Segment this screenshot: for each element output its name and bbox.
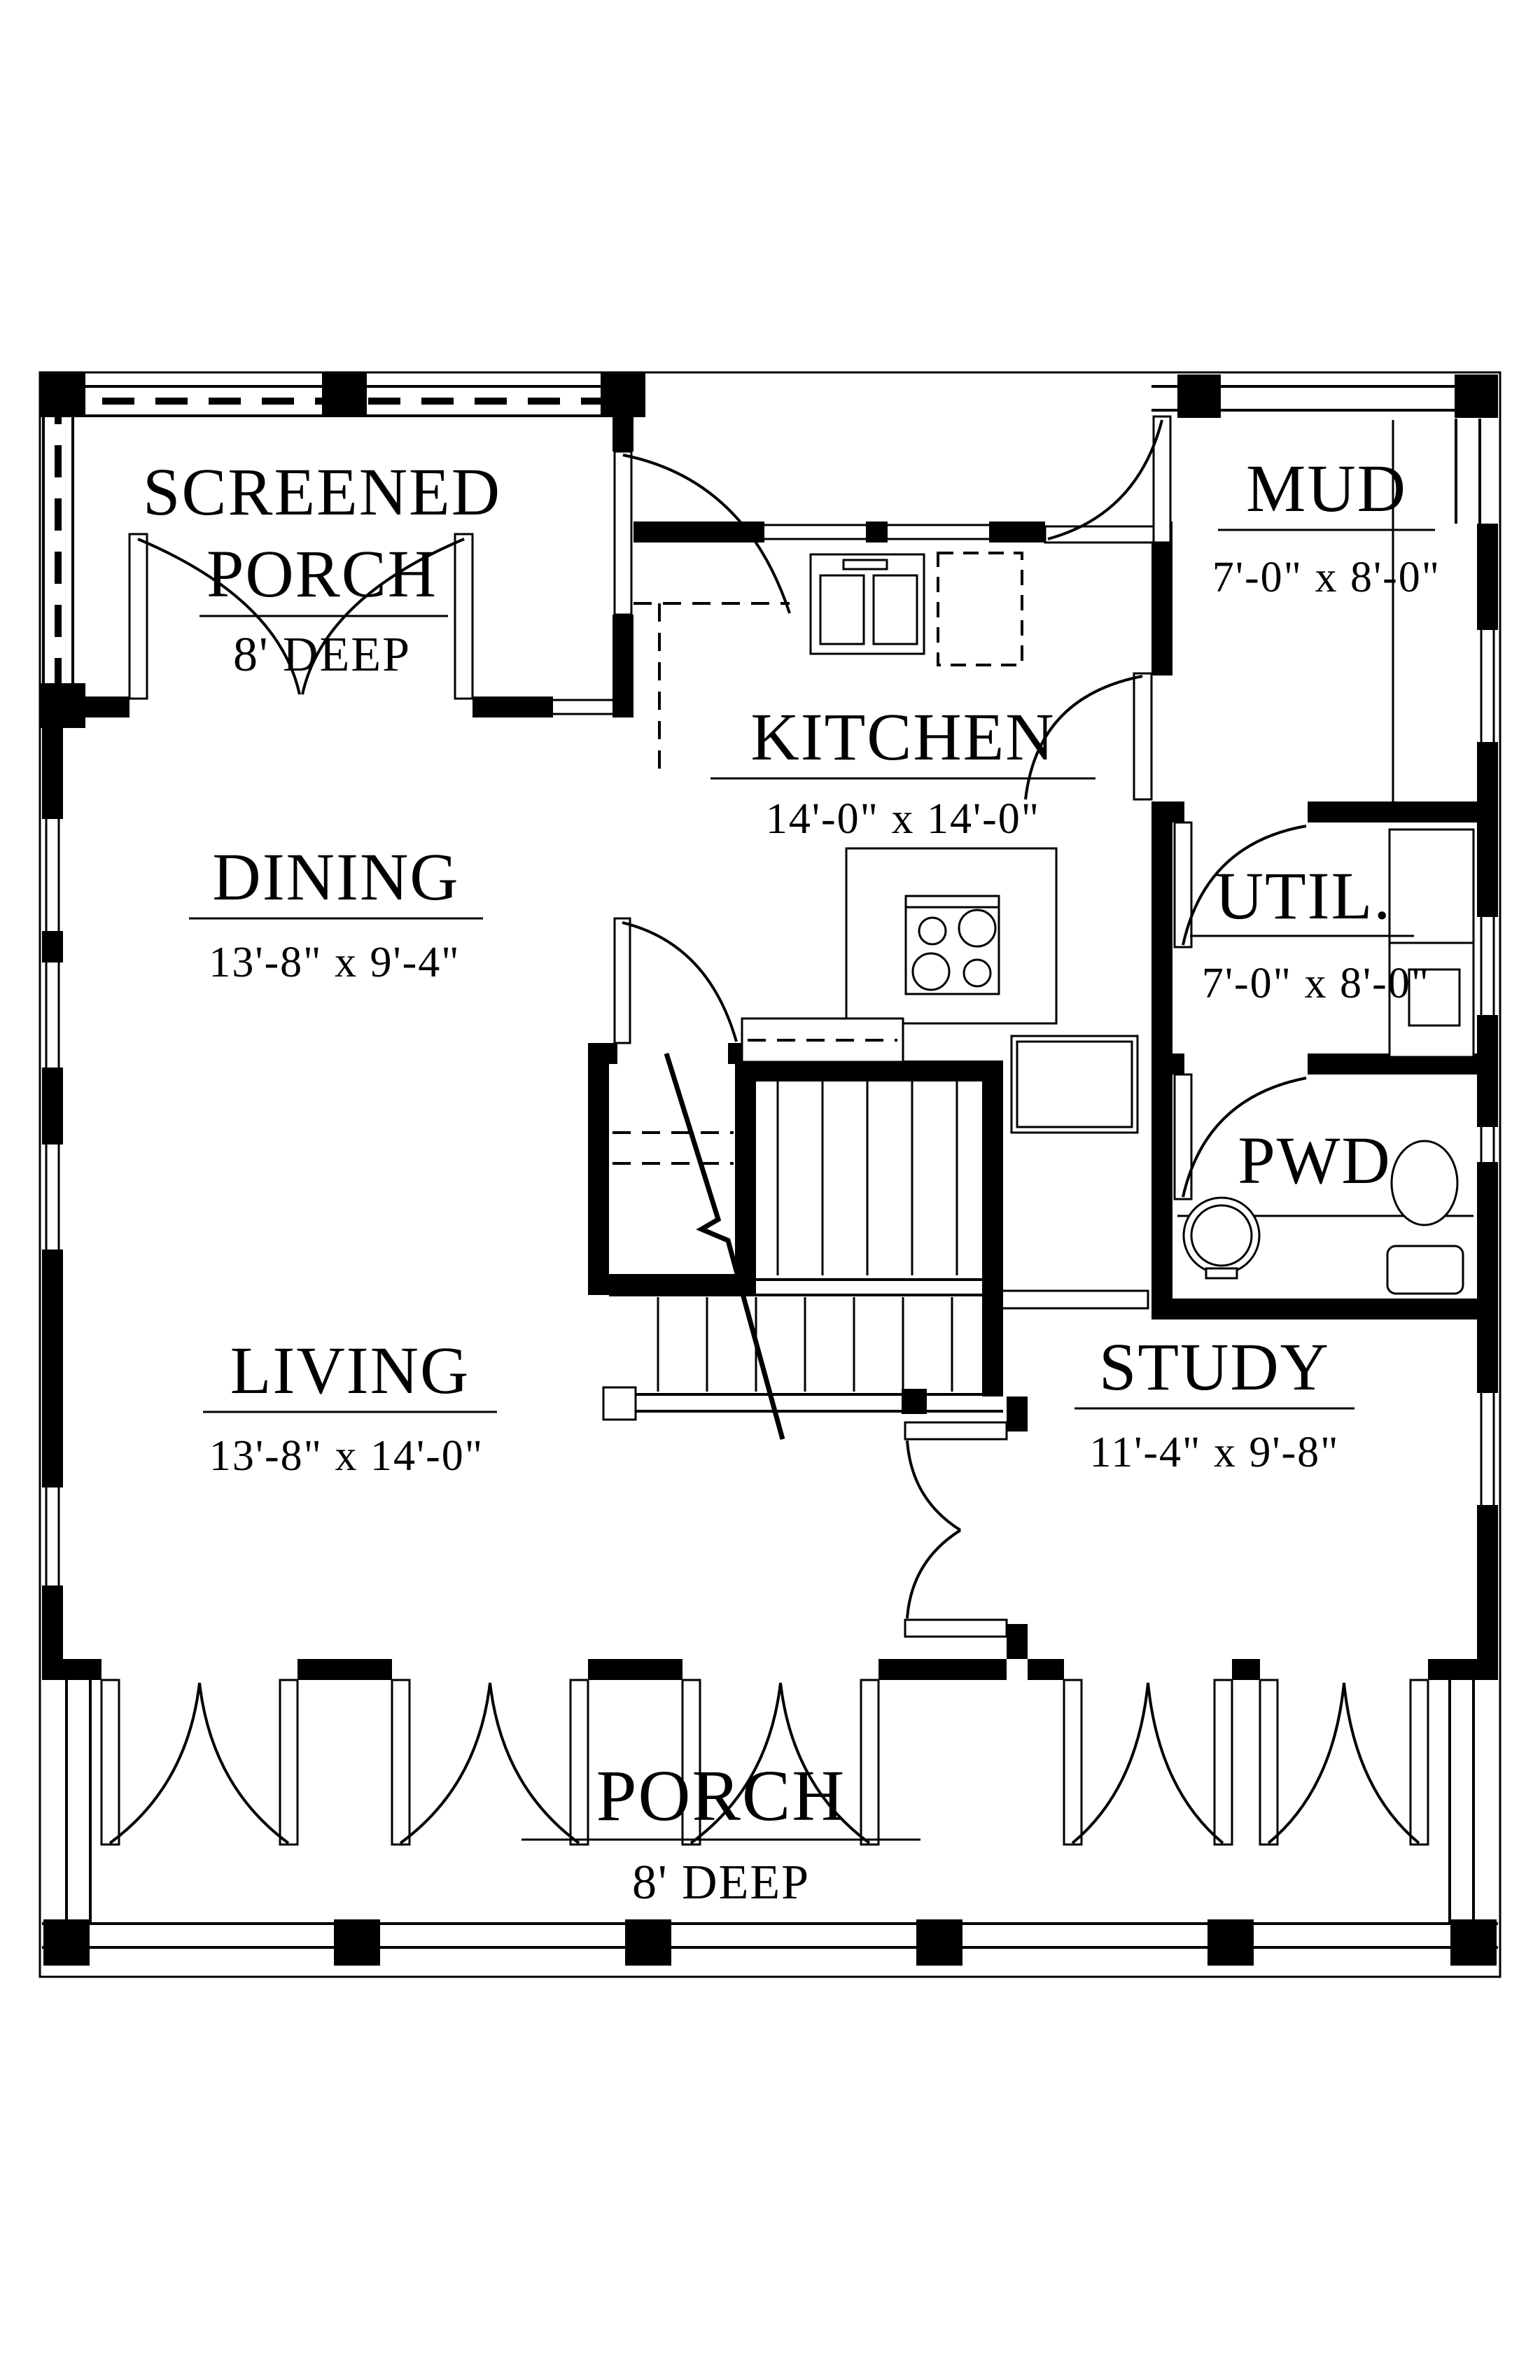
- newel-post: [603, 1387, 636, 1420]
- burner: [913, 953, 949, 990]
- rail-post: [902, 1389, 927, 1414]
- kitchen-sink: [811, 554, 924, 654]
- pwd-label: PWD: [1238, 1123, 1391, 1198]
- study-dims: 11'-4" x 9'-8": [1090, 1429, 1340, 1476]
- burner: [959, 910, 995, 946]
- hall-cabinet: [1011, 1036, 1137, 1133]
- porch-label: PORCH: [596, 1756, 846, 1836]
- porch-dims: 8' DEEP: [632, 1856, 810, 1910]
- porch-post: [322, 372, 367, 417]
- pocket-door: [983, 1291, 1148, 1308]
- dining-dims: 13'-8" x 9'-4": [209, 939, 460, 986]
- mud-label: MUD: [1246, 451, 1407, 526]
- vanity: [1387, 1246, 1463, 1294]
- stoop-post: [1177, 374, 1221, 418]
- dining-label: DINING: [212, 839, 459, 914]
- floor-plan: SCREENED PORCH 8' DEEP KITCHEN 14'-0" x …: [0, 0, 1540, 2380]
- pedestal-sink: [1392, 1141, 1457, 1225]
- util-dims: 7'-0" x 8'-0": [1202, 960, 1430, 1007]
- porch-post: [41, 372, 85, 417]
- washer-dryer: [1389, 829, 1473, 1057]
- living-label: LIVING: [230, 1333, 470, 1408]
- porch-post: [334, 1919, 380, 1966]
- porch-post: [916, 1919, 962, 1966]
- porch-post: [1207, 1919, 1254, 1966]
- burner: [919, 918, 946, 944]
- porch-post: [625, 1919, 671, 1966]
- study-label: STUDY: [1099, 1329, 1330, 1404]
- kitchen-dims: 14'-0" x 14'-0": [766, 795, 1040, 843]
- kitchen-island: [846, 848, 1056, 1023]
- screened-porch-label-1: SCREENED: [143, 454, 501, 529]
- kitchen-label: KITCHEN: [750, 699, 1055, 774]
- screened-porch-dims: 8' DEEP: [233, 628, 411, 682]
- living-dims: 13'-8" x 14'-0": [209, 1432, 484, 1480]
- porch-post: [1450, 1919, 1497, 1966]
- stoop-post: [1455, 374, 1498, 418]
- screened-porch-label-2: PORCH: [206, 536, 437, 611]
- mud-dims: 7'-0" x 8'-0": [1212, 554, 1441, 601]
- porch-post: [43, 1919, 90, 1966]
- burner: [964, 960, 990, 986]
- util-label: UTIL.: [1215, 858, 1392, 933]
